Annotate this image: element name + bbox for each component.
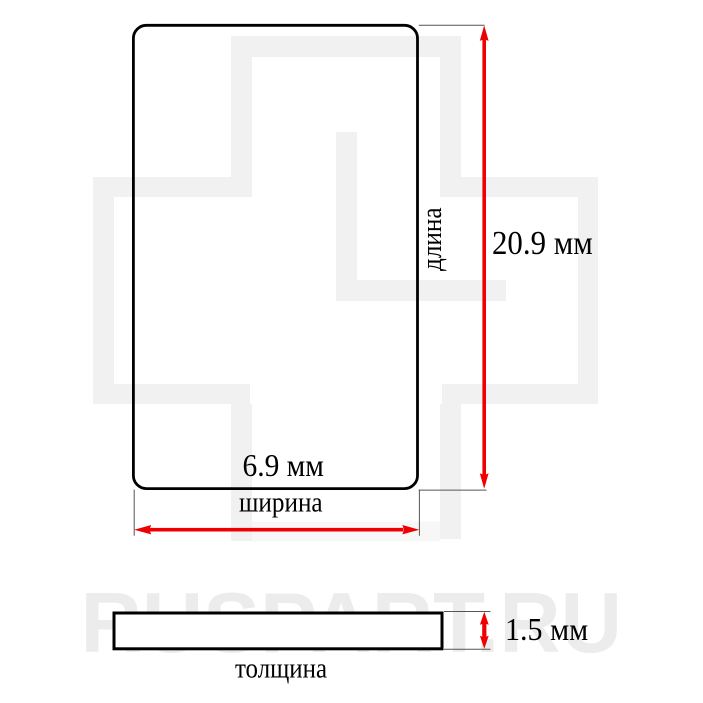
svg-text:20.9 мм: 20.9 мм — [492, 225, 593, 263]
svg-text:длина: длина — [416, 207, 448, 271]
svg-text:толщина: толщина — [235, 652, 327, 684]
svg-text:6.9 мм: 6.9 мм — [243, 448, 324, 483]
svg-text:1.5 мм: 1.5 мм — [505, 611, 588, 647]
svg-text:ширина: ширина — [239, 486, 323, 518]
